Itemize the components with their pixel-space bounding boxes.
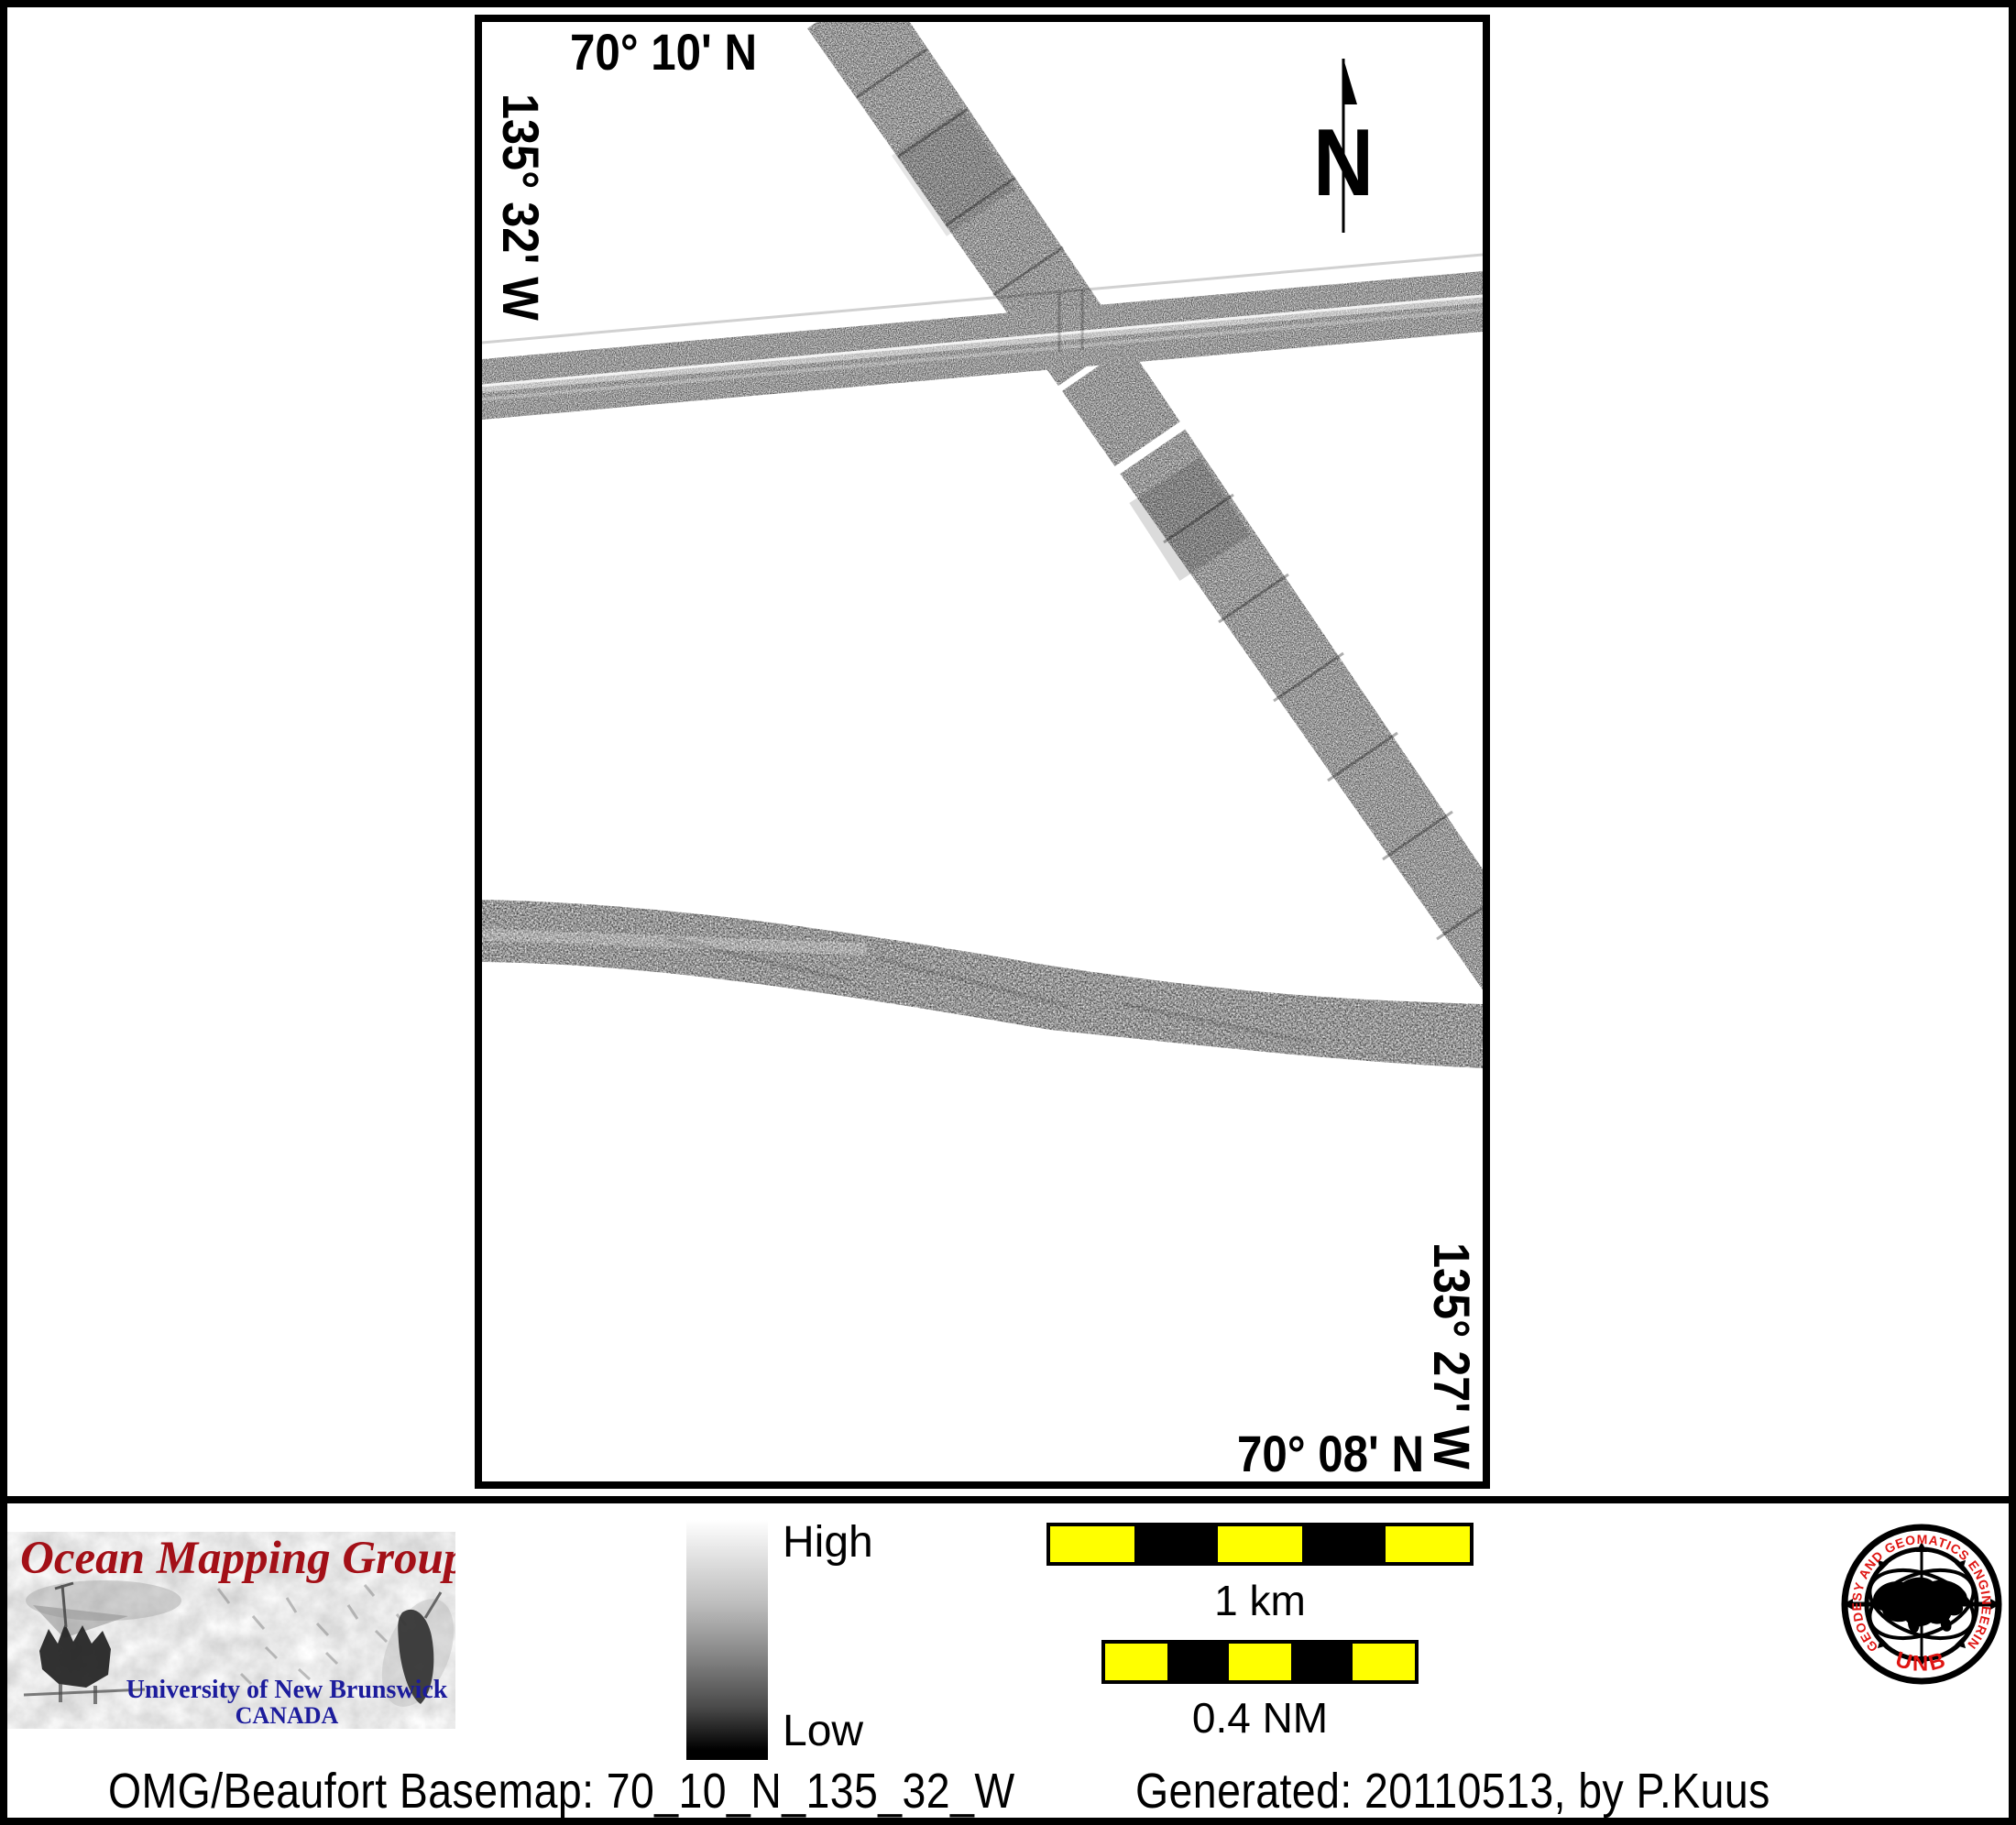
scalebar-segment [1050, 1526, 1134, 1562]
scalebar-segment [1291, 1644, 1353, 1680]
basemap-title: OMG/Beaufort Basemap: 70_10_N_135_32_W [108, 1765, 1015, 1819]
unb-geodesy-seal: GEODESY AND GEOMATICS ENGINEERING UNB [1840, 1523, 2003, 1686]
coordinate-label-top: 70° 10' N [570, 26, 757, 80]
scalebar-nm [1101, 1640, 1419, 1684]
north-arrow: N [1298, 49, 1398, 246]
scalebar-segment [1229, 1644, 1291, 1680]
scalebar-segment [1167, 1644, 1230, 1680]
scalebar-segment [1134, 1526, 1219, 1562]
coordinate-label-bottom: 70° 08' N [1237, 1427, 1424, 1481]
scalebar-segment [1386, 1526, 1470, 1562]
footer-divider [7, 1496, 2009, 1503]
omg-logo-university: University of New Brunswick [108, 1677, 455, 1703]
sonar-swath-bottom [482, 900, 1483, 1068]
scalebar-km [1046, 1523, 1474, 1566]
scalebar-segment [1105, 1644, 1167, 1680]
map-frame: 70° 10' N 135° 32' W 135° 27' W 70° 08' … [475, 15, 1490, 1489]
scalebar-km-label: 1 km [1046, 1578, 1474, 1624]
scalebar-segment [1218, 1526, 1302, 1562]
generated-info: Generated: 20110513, by P.Kuus [1135, 1765, 1770, 1819]
omg-logo: Ocean Mapping Group University of New Br… [7, 1532, 455, 1729]
coordinate-label-left: 135° 32' W [493, 93, 547, 321]
north-arrow-flag [1343, 59, 1357, 104]
basemap-page: 70° 10' N 135° 32' W 135° 27' W 70° 08' … [0, 0, 2016, 1825]
scalebar-segment [1353, 1644, 1415, 1680]
omg-logo-country: CANADA [108, 1704, 455, 1728]
omg-logo-title: Ocean Mapping Group [20, 1532, 444, 1585]
scalebar-segment [1302, 1526, 1386, 1562]
seal-globe-continents [1873, 1578, 1967, 1633]
scalebar-nm-label: 0.4 NM [1101, 1695, 1419, 1742]
coordinate-label-right: 135° 27' W [1424, 1242, 1478, 1470]
colorbar-high-label: High [783, 1521, 873, 1565]
sonar-swath-horizontal [482, 255, 1483, 420]
colorbar-low-label: Low [783, 1710, 863, 1754]
north-label: N [1313, 109, 1374, 216]
backscatter-colorbar [686, 1520, 768, 1760]
